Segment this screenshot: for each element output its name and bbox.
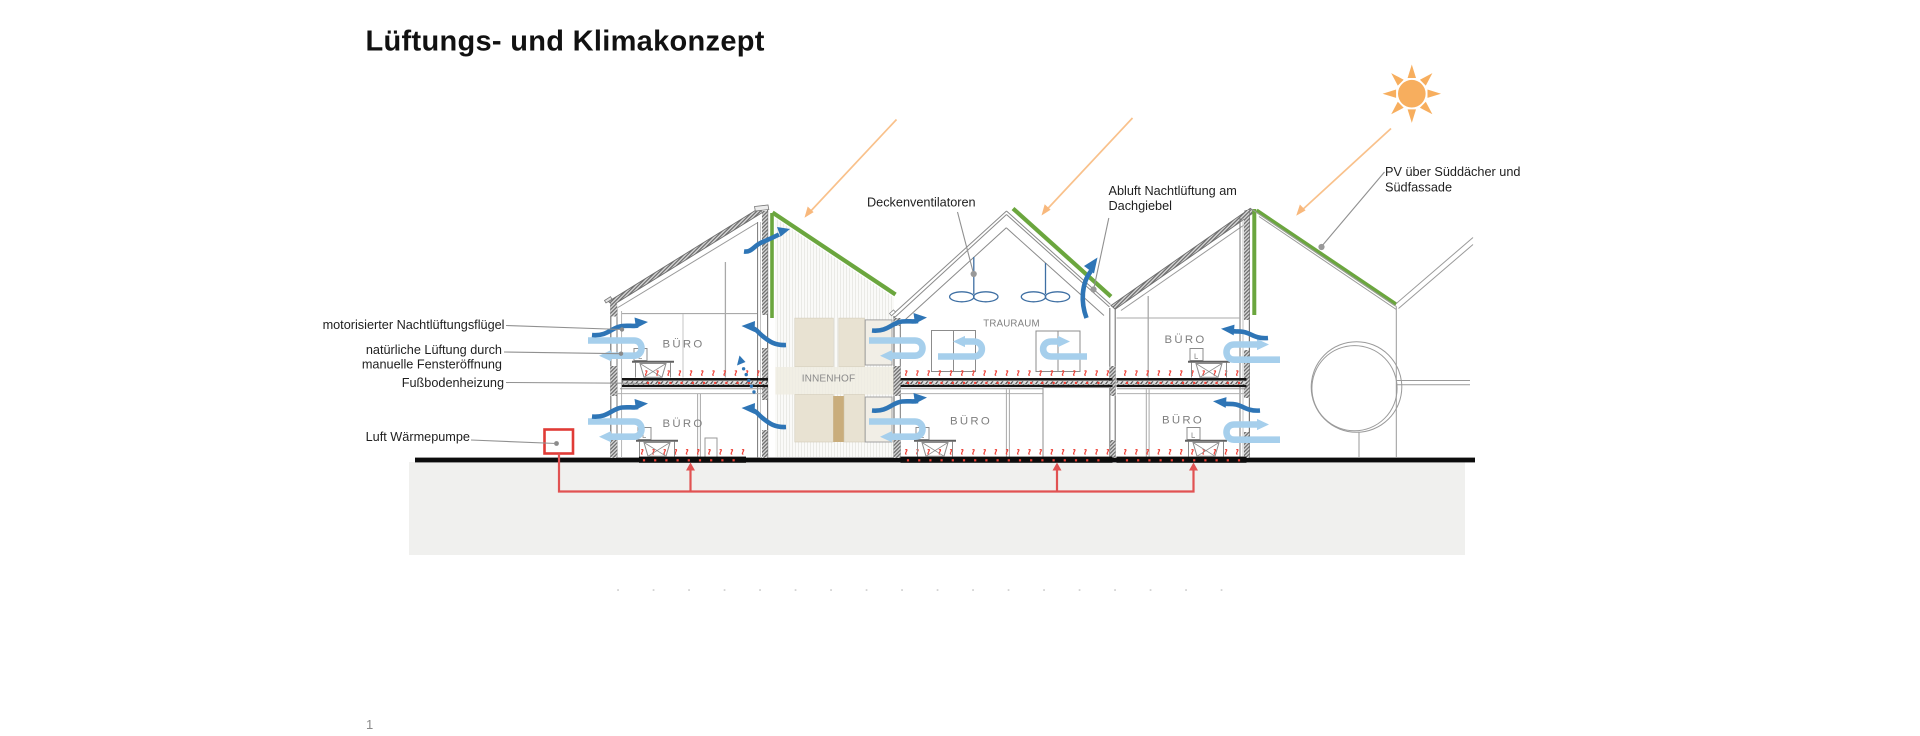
svg-text:manuelle Fensteröffnung: manuelle Fensteröffnung: [362, 358, 502, 372]
svg-text:PV über Süddächer und: PV über Süddächer und: [1385, 165, 1520, 179]
svg-text:BÜRO: BÜRO: [1164, 334, 1206, 346]
svg-text:Lüftungs- und Klimakonzept: Lüftungs- und Klimakonzept: [366, 26, 765, 58]
svg-text:motorisierter Nachtlüftungsflü: motorisierter Nachtlüftungsflügel: [323, 318, 505, 332]
svg-text:1: 1: [366, 717, 373, 732]
svg-text:INNENHOF: INNENHOF: [802, 374, 856, 385]
svg-text:Südfassade: Südfassade: [1385, 181, 1452, 195]
svg-text:BÜRO: BÜRO: [662, 339, 704, 351]
svg-text:Abluft Nachtlüftung am: Abluft Nachtlüftung am: [1109, 184, 1237, 198]
svg-text:BÜRO: BÜRO: [950, 416, 992, 428]
svg-text:BÜRO: BÜRO: [1162, 415, 1204, 427]
svg-text:Fußbodenheizung: Fußbodenheizung: [402, 376, 504, 390]
svg-text:BÜRO: BÜRO: [662, 418, 704, 430]
svg-text:Deckenventilatoren: Deckenventilatoren: [867, 196, 976, 210]
svg-text:Luft Wärmepumpe: Luft Wärmepumpe: [366, 430, 470, 444]
svg-text:TRAURAUM: TRAURAUM: [983, 319, 1040, 330]
svg-text:Dachgiebel: Dachgiebel: [1109, 199, 1172, 213]
svg-text:natürliche Lüftung durch: natürliche Lüftung durch: [366, 343, 502, 357]
